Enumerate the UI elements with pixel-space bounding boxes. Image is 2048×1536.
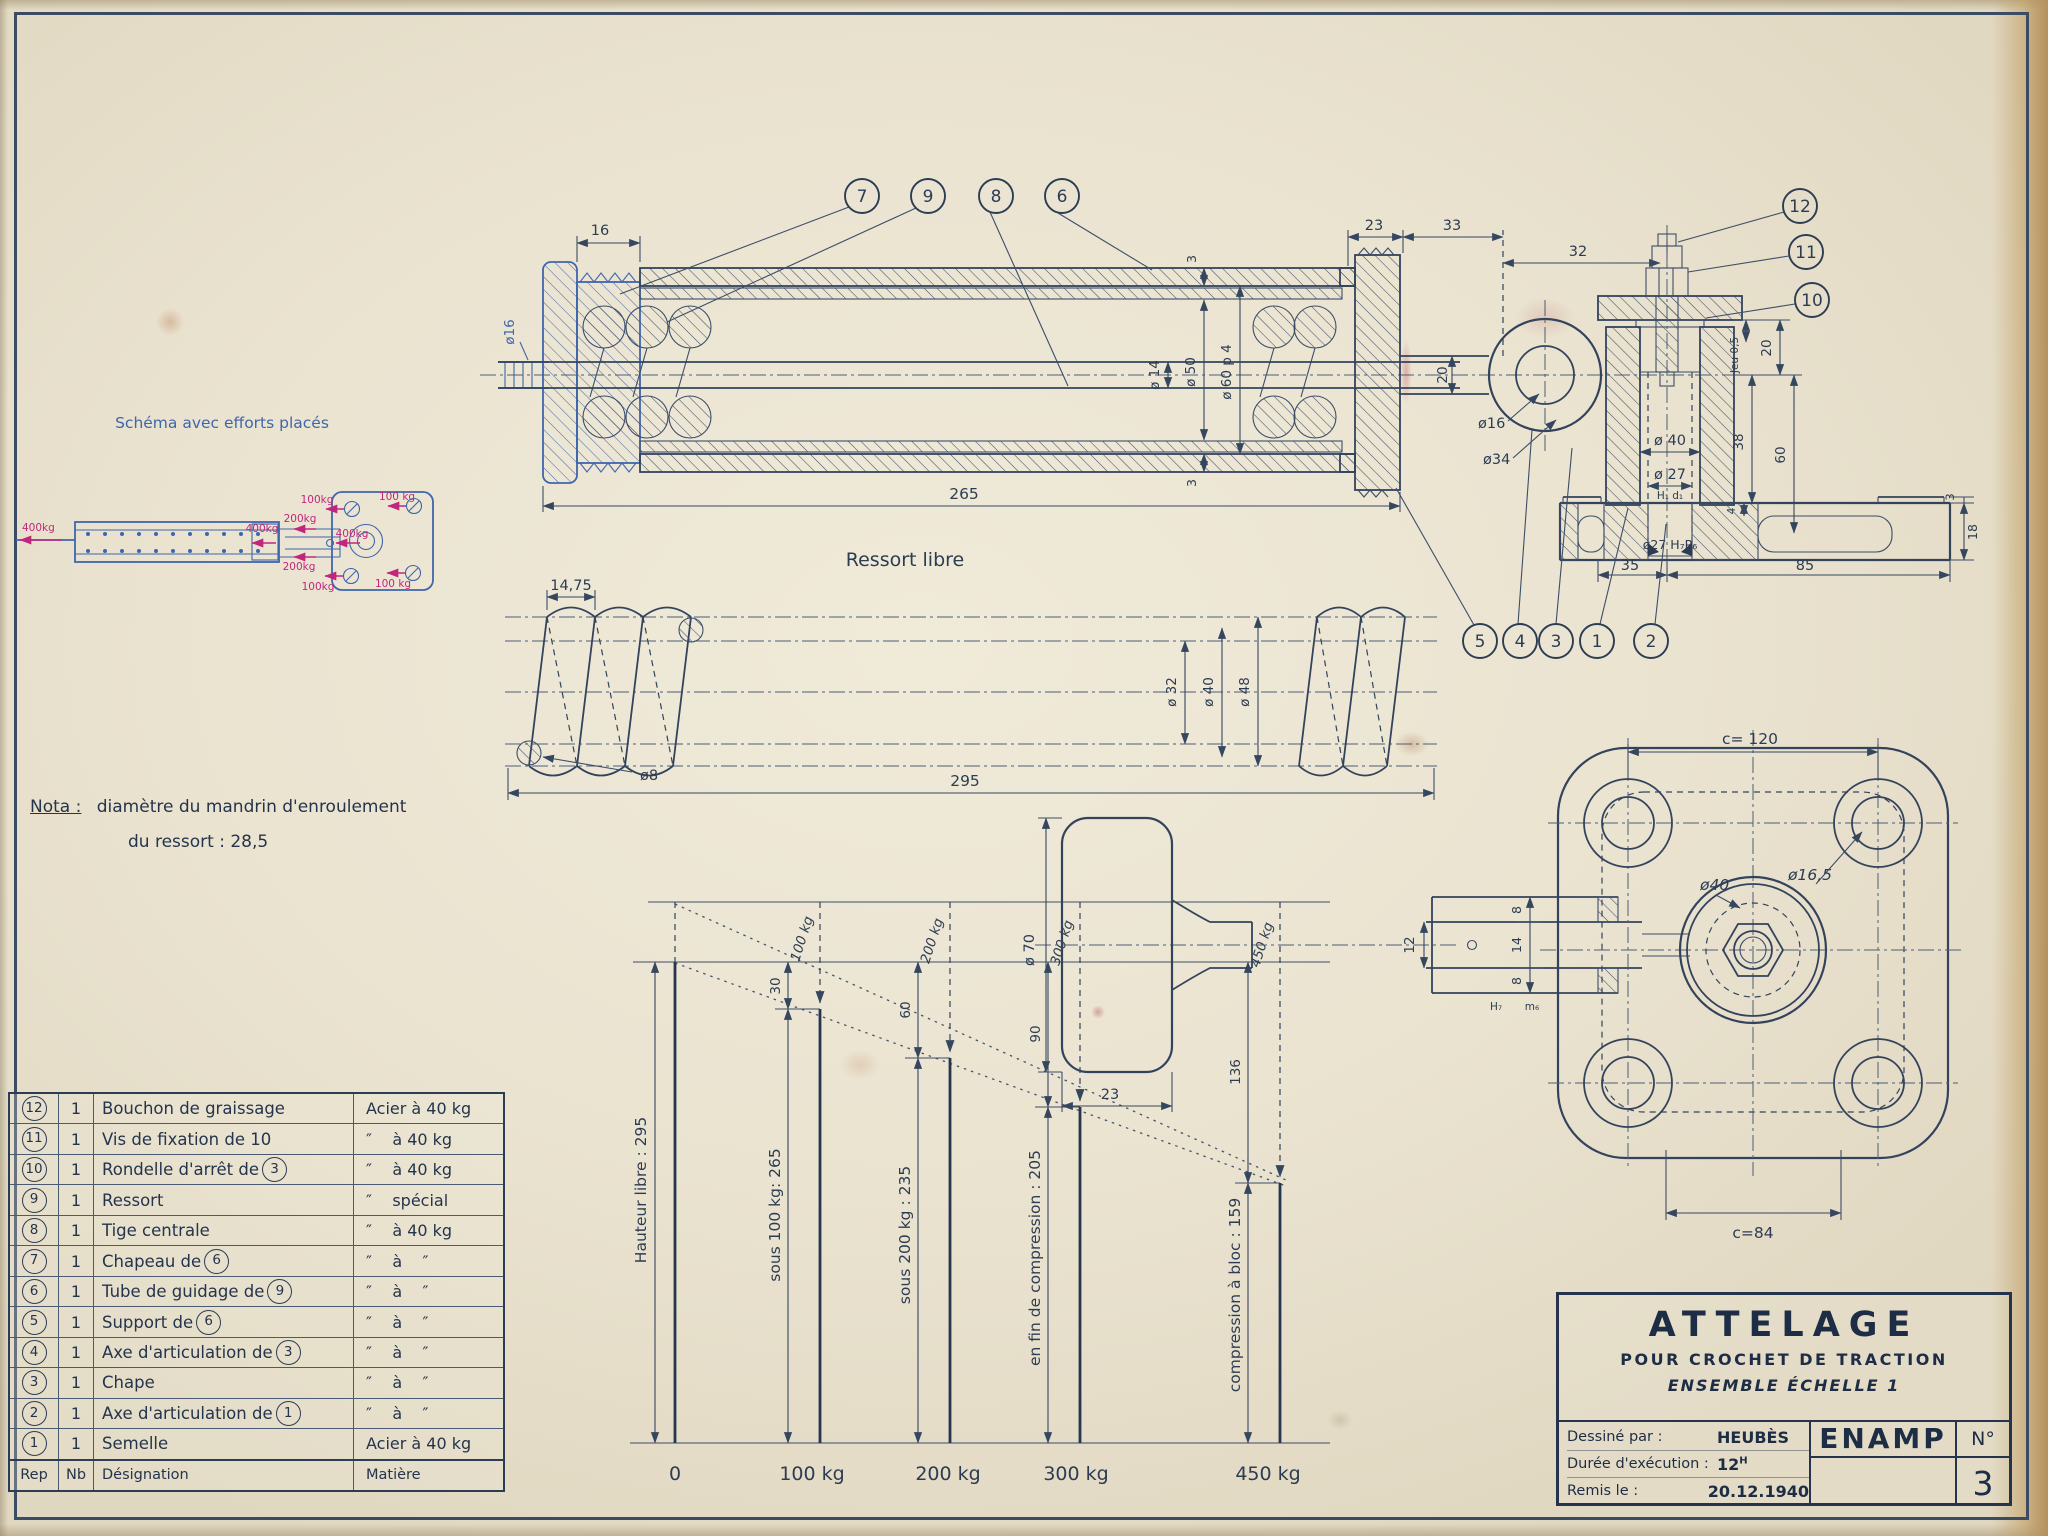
callout-6: 6 [1057, 187, 1068, 207]
part-material: ″ à ″ [354, 1277, 503, 1306]
part-rep-badge: 3 [22, 1370, 47, 1395]
force-center-label: 400kg [336, 528, 369, 540]
dim-32: 32 [1569, 244, 1587, 260]
dim-t14: 14 [1509, 937, 1524, 953]
callout-12: 12 [1789, 197, 1811, 217]
part-designation: Vis de fixation de 10 [94, 1124, 354, 1153]
drawn-by-label: Dessiné par : [1567, 1429, 1717, 1445]
force-corner-tr: 100 kg [379, 491, 415, 503]
part-material: ″ à 40 kg [354, 1124, 503, 1153]
force-top-label: 200kg [284, 513, 317, 525]
dim-plate-dia40: ø40 [1699, 876, 1729, 894]
chart-tick-200: 200 kg [915, 1463, 980, 1485]
part-qty: 1 [59, 1307, 94, 1336]
date-value: 20.12.1940 [1708, 1482, 1809, 1501]
dim-33: 33 [1443, 218, 1461, 234]
date-row: Remis le : 20.12.1940 [1567, 1478, 1809, 1504]
dim-w23: 23 [1101, 1087, 1119, 1103]
dim-dia50: ø 50 [1183, 357, 1199, 387]
duration-value: 12 [1717, 1455, 1739, 1474]
part-designation: Chape [94, 1368, 354, 1397]
fit-m6: m₆ [1525, 1001, 1539, 1013]
chart-defl-90: 90 [1028, 1025, 1044, 1042]
parts-table-row: 8 1 Tige centrale ″ à 40 kg [10, 1215, 503, 1245]
dim-dia34: ø34 [1483, 452, 1510, 468]
part-rep-badge: 9 [22, 1188, 47, 1213]
part-material: ″ spécial [354, 1185, 503, 1214]
dim-h12: 12 [1402, 936, 1418, 953]
callout-4: 4 [1515, 632, 1526, 652]
parts-table-row: 11 1 Vis de fixation de 10 ″ à 40 kg [10, 1123, 503, 1153]
chart-tick-100: 100 kg [779, 1463, 844, 1485]
part-rep-badge: 4 [22, 1340, 47, 1365]
dim-c120: c= 120 [1722, 730, 1778, 748]
part-rep-badge: 1 [22, 1431, 47, 1456]
dim-h38: 38 [1731, 433, 1747, 450]
force-bottom-label: 200kg [283, 561, 316, 573]
blueprint-sheet: { "colors":{"ink":"#2e3e56","blue":"#3f6… [0, 0, 2048, 1536]
nota-block: Nota : diamètre du mandrin d'enroulement [30, 797, 406, 817]
date-label: Remis le : [1567, 1483, 1708, 1499]
part-rep-badge: 6 [22, 1279, 47, 1304]
part-material: ″ à ″ [354, 1399, 503, 1428]
force-left-label: 400kg [22, 522, 55, 534]
drawn-by-value: HEUBÈS [1717, 1428, 1789, 1447]
parts-table-row: 1 1 Semelle Acier à 40 kg [10, 1428, 503, 1458]
part-qty: 1 [59, 1368, 94, 1397]
org-name: ENAMP [1811, 1422, 1955, 1458]
nota-line2: du ressort : 28,5 [128, 832, 268, 852]
dim-bore: ø27 H₇P₆ [1643, 537, 1698, 552]
number-value: 3 [1957, 1464, 2009, 1503]
assembly-section-view: ø16 16 [480, 218, 1980, 582]
dim-pad3: 3 [1943, 493, 1957, 500]
part-material: ″ à 40 kg [354, 1155, 503, 1184]
part-material: Acier à 40 kg [354, 1094, 503, 1123]
force-schema-view: Schéma avec efforts placés [16, 414, 433, 593]
chart-tick-300: 300 kg [1043, 1463, 1108, 1485]
part-designation: Ressort [94, 1185, 354, 1214]
part-material: ″ à ″ [354, 1307, 503, 1336]
part-qty: 1 [59, 1094, 94, 1123]
part-material: ″ à 40 kg [354, 1216, 503, 1245]
org-cell: ENAMP [1809, 1422, 1955, 1504]
part-material: ″ à ″ [354, 1338, 503, 1367]
part-qty: 1 [59, 1277, 94, 1306]
part-qty: 1 [59, 1246, 94, 1275]
nota-label: Nota : [30, 797, 81, 817]
dim-pitch: 14,75 [550, 578, 592, 594]
dim-wall3-bot: 3 [1184, 479, 1199, 487]
callout-11: 11 [1795, 243, 1817, 263]
base-plate-views: ø 70 23 12 8 14 8 H₇ m₆ [1022, 730, 1965, 1242]
part-designation: Axe d'articulation de 3 [94, 1338, 354, 1367]
dim-35: 35 [1621, 558, 1639, 574]
number-cell: N° 3 [1955, 1422, 2009, 1504]
drawing-scale-note: ENSEMBLE ÉCHELLE 1 [1559, 1376, 2009, 1395]
force-corner-tl: 100kg [301, 494, 334, 506]
chart-tick-450: 450 kg [1235, 1463, 1300, 1485]
dim-16: 16 [591, 223, 609, 239]
dim-dia48: ø 48 [1237, 677, 1253, 707]
part-designation: Tube de guidage de 9 [94, 1277, 354, 1306]
force-corner-bl: 100kg [302, 581, 335, 593]
callout-7: 7 [857, 187, 868, 207]
duration-row: Durée d'exécution : 12H [1567, 1451, 1809, 1478]
part-qty: 1 [59, 1399, 94, 1428]
part-rep-badge: 8 [22, 1218, 47, 1243]
chart-load-100: 100 kg [787, 914, 817, 964]
dim-pin-dia16: ø16 [1478, 416, 1505, 432]
dim-h20: 20 [1759, 339, 1775, 356]
callout-1: 1 [1592, 632, 1603, 652]
dim-t8b: 8 [1509, 977, 1524, 985]
part-qty: 1 [59, 1155, 94, 1184]
chart-bar-200: sous 200 kg : 235 [896, 1166, 914, 1304]
parts-table-row: 7 1 Chapeau de 6 ″ à ″ [10, 1245, 503, 1275]
duration-unit: H [1739, 1455, 1747, 1466]
parts-table-row: 12 1 Bouchon de graissage Acier à 40 kg [10, 1094, 503, 1123]
dim-85: 85 [1796, 558, 1814, 574]
force-corner-br: 100 kg [375, 578, 411, 590]
dim-dia40s: ø 40 [1201, 677, 1217, 707]
part-designation: Bouchon de graissage [94, 1094, 354, 1123]
callout-2: 2 [1646, 632, 1657, 652]
parts-table-header: Rep Nb Désignation Matière [10, 1459, 503, 1490]
header-nb: Nb [59, 1461, 94, 1490]
chart-bar-450: compression à bloc : 159 [1226, 1198, 1244, 1392]
part-designation: Tige centrale [94, 1216, 354, 1245]
fit-dia27: H₁ d₁ [1657, 490, 1683, 502]
part-rep-badge: 12 [22, 1096, 47, 1121]
part-qty: 1 [59, 1216, 94, 1245]
nota-line1: diamètre du mandrin d'enroulement [97, 797, 407, 817]
part-rep-badge: 11 [22, 1127, 47, 1152]
part-designation: Rondelle d'arrêt de 3 [94, 1155, 354, 1184]
callout-9: 9 [923, 187, 934, 207]
parts-table-row: 10 1 Rondelle d'arrêt de 3 ″ à 40 kg [10, 1154, 503, 1184]
chart-bar-100: sous 100 kg: 265 [766, 1148, 784, 1281]
dim-jeu: Jeu 0,5 [1729, 337, 1741, 374]
header-designation: Désignation [94, 1461, 354, 1490]
dim-t8a: 8 [1509, 906, 1524, 914]
part-designation: Axe d'articulation de 1 [94, 1399, 354, 1428]
parts-table-row: 4 1 Axe d'articulation de 3 ″ à ″ [10, 1337, 503, 1367]
title-block-top: ATTELAGE POUR CROCHET DE TRACTION ENSEMB… [1559, 1295, 2009, 1422]
title-block-info: Dessiné par : HEUBÈS Durée d'exécution :… [1559, 1422, 1809, 1504]
schema-rivet-dots [86, 532, 260, 553]
parts-table-row: 3 1 Chape ″ à ″ [10, 1367, 503, 1397]
parts-table-row: 2 1 Axe d'articulation de 1 ″ à ″ [10, 1398, 503, 1428]
part-qty: 1 [59, 1124, 94, 1153]
dim-dia60: ø 60 p 4 [1219, 344, 1235, 399]
parts-table: 12 1 Bouchon de graissage Acier à 40 kg … [8, 1092, 505, 1492]
part-rep-badge: 2 [22, 1401, 47, 1426]
dim-neck-20: 20 [1435, 366, 1451, 383]
dim-plate-dia165: ø16,5 [1787, 866, 1832, 884]
header-matiere: Matière [354, 1461, 503, 1490]
dim-dia32: ø 32 [1164, 677, 1180, 707]
part-rep-badge: 5 [22, 1310, 47, 1335]
part-designation: Support de 6 [94, 1307, 354, 1336]
part-qty: 1 [59, 1429, 94, 1458]
callout-8: 8 [991, 187, 1002, 207]
fit-h7: H₇ [1490, 1001, 1502, 1013]
part-material: ″ à ″ [354, 1246, 503, 1275]
dim-265: 265 [949, 485, 979, 503]
dim-c84: c=84 [1732, 1224, 1773, 1242]
callout-3: 3 [1551, 632, 1562, 652]
header-rep: Rep [10, 1461, 59, 1490]
schema-title: Schéma avec efforts placés [115, 414, 329, 432]
chart-defl-30: 30 [768, 977, 784, 994]
duration-label: Durée d'exécution : [1567, 1456, 1717, 1472]
chart-bar-300: en fin de compression : 205 [1026, 1150, 1044, 1366]
chart-tick-0: 0 [669, 1463, 681, 1485]
number-label: N° [1957, 1422, 2009, 1458]
dim-h60: 60 [1773, 446, 1789, 463]
parts-table-row: 6 1 Tube de guidage de 9 ″ à ″ [10, 1276, 503, 1306]
chart-defl-136: 136 [1228, 1059, 1244, 1085]
chart-free-height-label: Hauteur libre : 295 [632, 1117, 650, 1263]
dim-wall3-top: 3 [1184, 255, 1199, 263]
callout-10: 10 [1801, 291, 1823, 311]
dim-dia70: ø 70 [1022, 934, 1038, 966]
dim-23: 23 [1365, 218, 1383, 234]
dim-dia40: ø 40 [1654, 433, 1686, 449]
parts-table-row: 5 1 Support de 6 ″ à ″ [10, 1306, 503, 1336]
callout-5: 5 [1475, 632, 1486, 652]
drawn-by-row: Dessiné par : HEUBÈS [1567, 1424, 1809, 1451]
schema-bolts [344, 499, 422, 584]
free-spring-view: Ressort libre 14,75 ø8 [505, 549, 1437, 800]
chart-load-200: 200 kg [917, 916, 947, 966]
part-material: Acier à 40 kg [354, 1429, 503, 1458]
dim-dia27: ø 27 [1654, 467, 1686, 483]
part-rep-badge: 10 [22, 1157, 47, 1182]
drawing-title: ATTELAGE [1559, 1295, 2009, 1345]
dim-wire: ø8 [640, 768, 658, 784]
force-rod-label: 400kg [246, 523, 279, 535]
chart-defl-60: 60 [898, 1001, 914, 1018]
dim-rod-dia16: ø16 [502, 319, 518, 344]
parts-table-row: 9 1 Ressort ″ spécial [10, 1184, 503, 1214]
part-designation: Semelle [94, 1429, 354, 1458]
dim-dia14: ø 14 [1147, 360, 1163, 390]
part-material: ″ à ″ [354, 1368, 503, 1397]
part-designation: Chapeau de 6 [94, 1246, 354, 1275]
part-rep-badge: 7 [22, 1249, 47, 1274]
dim-18: 18 [1965, 524, 1980, 540]
part-qty: 1 [59, 1185, 94, 1214]
part-qty: 1 [59, 1338, 94, 1367]
dim-295: 295 [950, 772, 980, 790]
title-block: ATTELAGE POUR CROCHET DE TRACTION ENSEMB… [1556, 1292, 2012, 1506]
compression-chart: Hauteur libre : 295 30 sous 100 kg: 265 … [630, 902, 1330, 1485]
drawing-subtitle: POUR CROCHET DE TRACTION [1559, 1350, 2009, 1369]
spring-title: Ressort libre [846, 549, 964, 571]
